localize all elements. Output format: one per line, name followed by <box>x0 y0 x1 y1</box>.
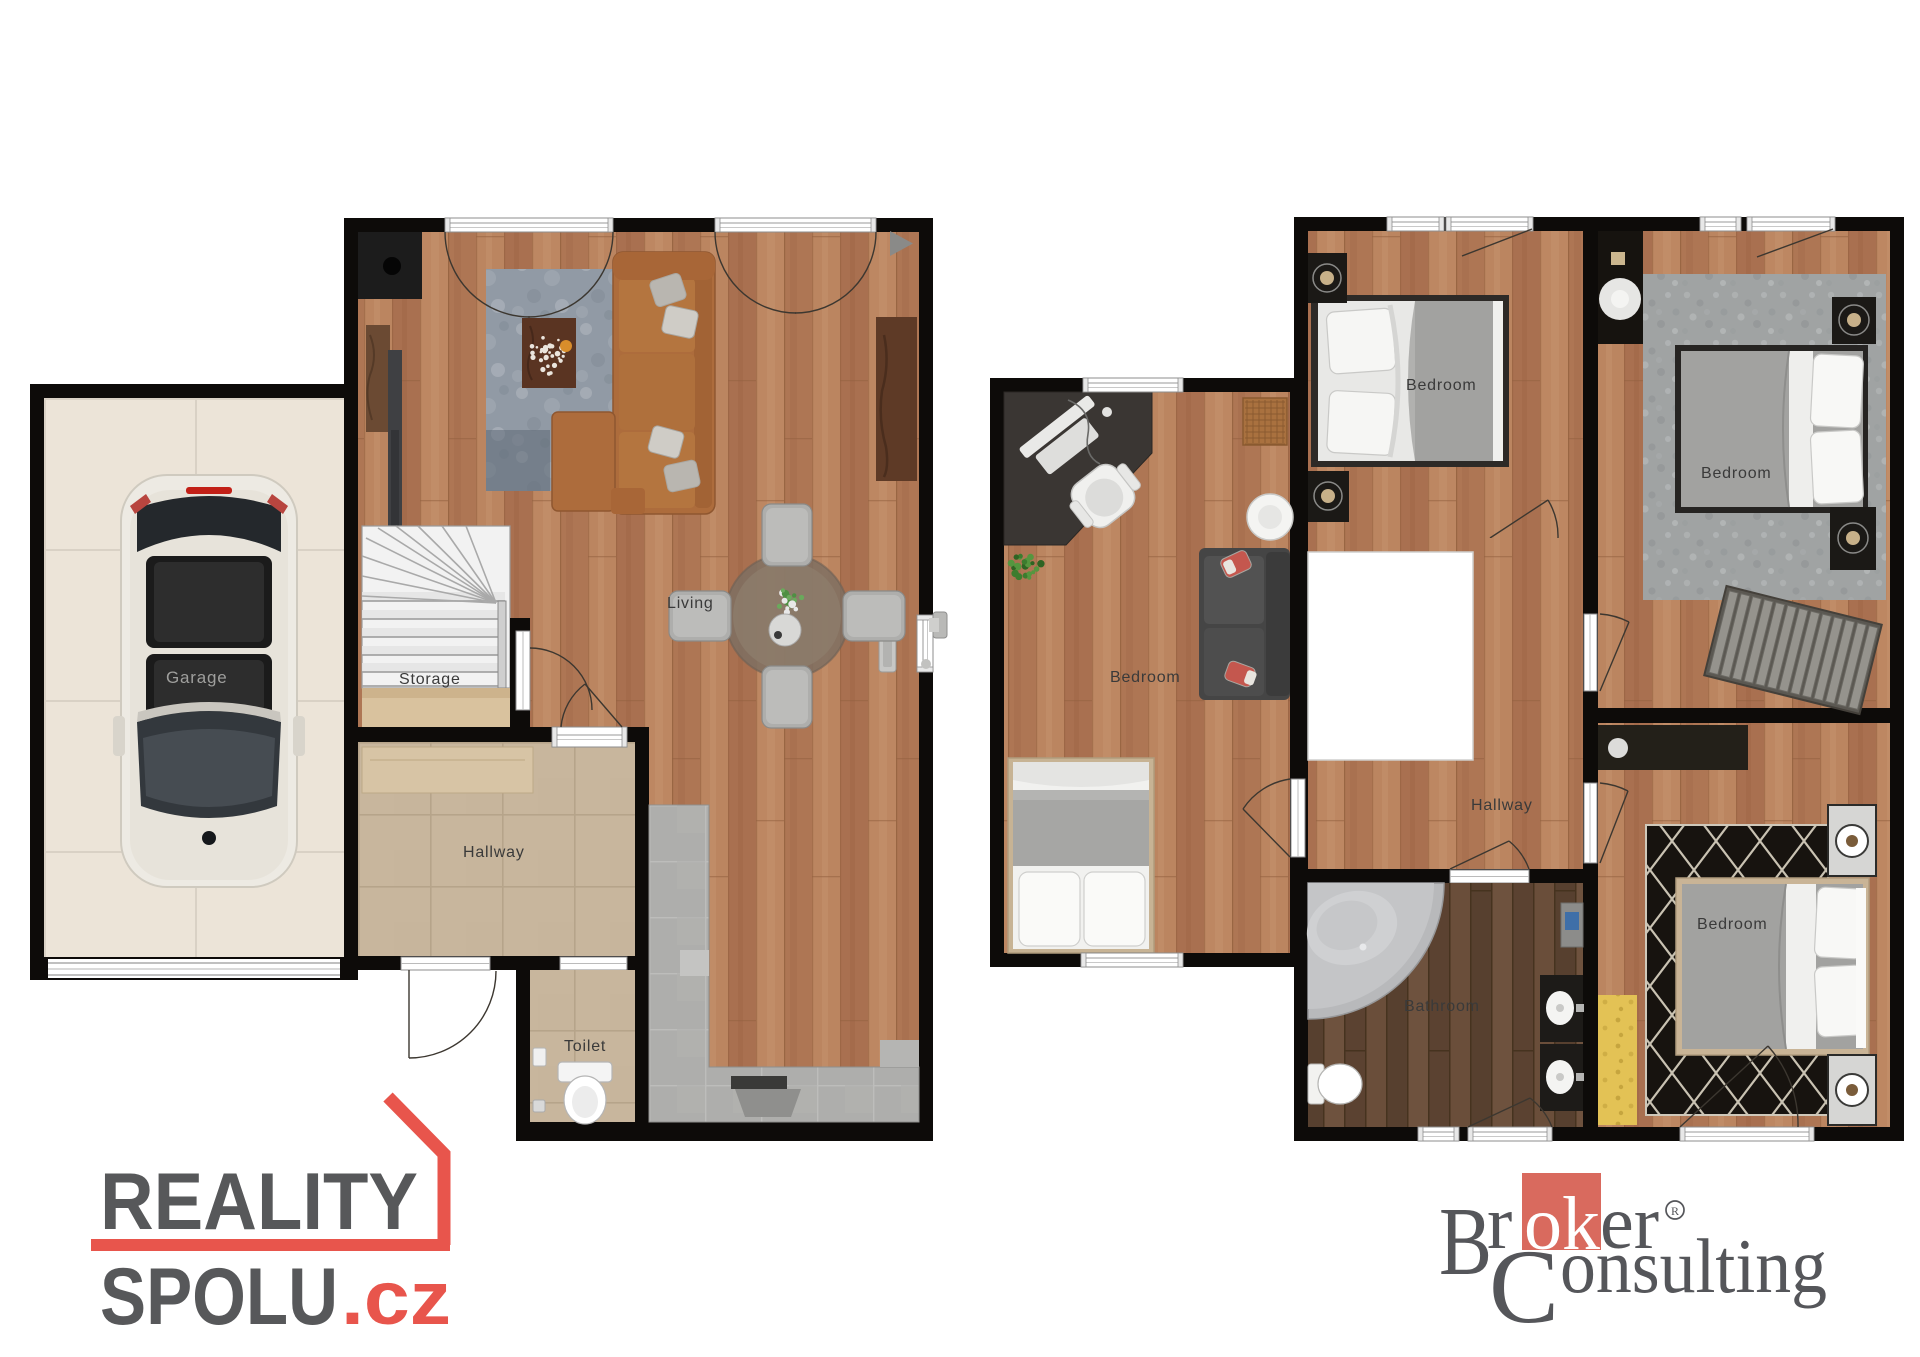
svg-text:Storage: Storage <box>399 671 461 688</box>
svg-text:onsulting: onsulting <box>1560 1223 1827 1309</box>
svg-text:Bedroom: Bedroom <box>1110 669 1181 686</box>
svg-text:Bedroom: Bedroom <box>1697 916 1768 933</box>
svg-text:Hallway: Hallway <box>463 844 525 861</box>
svg-text:Hallway: Hallway <box>1471 797 1533 814</box>
svg-text:Bedroom: Bedroom <box>1406 377 1477 394</box>
svg-text:Bathroom: Bathroom <box>1404 998 1480 1015</box>
svg-text:B: B <box>1439 1188 1492 1295</box>
svg-text:Toilet: Toilet <box>564 1038 606 1055</box>
svg-text:C: C <box>1489 1228 1559 1345</box>
svg-text:REALITY: REALITY <box>100 1157 418 1247</box>
svg-text:Living: Living <box>667 595 714 612</box>
svg-text:Garage: Garage <box>166 668 228 687</box>
svg-text:R: R <box>1671 1204 1679 1218</box>
svg-text:.cz: .cz <box>341 1256 451 1341</box>
svg-text:Bedroom: Bedroom <box>1701 465 1772 482</box>
svg-text:SPOLU: SPOLU <box>100 1252 338 1342</box>
